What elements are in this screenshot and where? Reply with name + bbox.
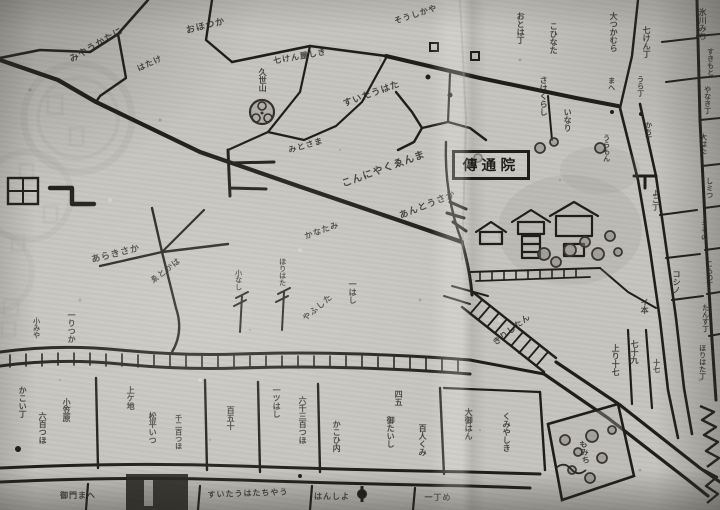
map-label: 一丁め: [425, 494, 452, 502]
map-label: くみやしき: [502, 412, 510, 452]
map-label: 百五十: [226, 406, 234, 430]
map-label: やなき丁: [703, 86, 710, 114]
map-label: ほりはた丁: [698, 345, 705, 380]
map-label: まへ: [607, 77, 614, 91]
dark-compound-block: [126, 474, 188, 510]
map-label: 上ケ地: [126, 386, 134, 410]
map-label: 御門まへ: [60, 492, 96, 500]
map-label: 七けん丁: [642, 26, 650, 58]
map-label: 大御はん: [464, 408, 472, 440]
map-label: 六百つほ: [38, 412, 46, 444]
upper-street: [386, 56, 618, 106]
temple-label-box: 傳通院: [452, 150, 530, 180]
map-label: 千二百つほ: [174, 415, 181, 450]
map-label: コシノ: [672, 270, 680, 294]
temple-crest-icon: [250, 100, 274, 124]
map-label: よこ丁: [651, 190, 658, 211]
map-label: 六千三百つほ: [298, 396, 306, 444]
map-label: すきもと: [706, 48, 713, 76]
zigzag-boundary: [700, 406, 719, 503]
map-label: おとは丁: [516, 12, 524, 44]
temple-label: 傳通院: [463, 155, 520, 175]
page-crease: [460, 0, 466, 260]
map-label: 大はた: [699, 134, 706, 155]
map-label: 久世山: [258, 68, 266, 92]
map-label: かこひ内: [332, 420, 340, 452]
gate-marker-icons: [430, 43, 479, 60]
map-label: いなり: [563, 108, 571, 132]
map-label: こもの丁: [705, 260, 712, 288]
map-label: かち丁: [644, 122, 651, 143]
map-label: 七十九: [630, 340, 638, 364]
map-label: 松平いつ: [148, 412, 156, 444]
map-label: はんしよ: [314, 493, 350, 501]
map-label: ほりはた: [278, 258, 285, 286]
map-label: 一りつか: [67, 311, 75, 343]
map-label: 御たいし: [386, 416, 394, 448]
map-label: うら丁: [636, 76, 643, 97]
map-label: 小なし: [234, 270, 241, 291]
map-label: 上り十七: [611, 344, 619, 376]
library-stamp-watermark: [0, 64, 132, 336]
map-label: 一ツはし: [272, 386, 280, 418]
map-label: しミつ: [705, 178, 712, 199]
map-label: こひなた: [549, 22, 557, 54]
map-label: 百人くみ: [418, 424, 426, 456]
map-label: たんす丁: [701, 304, 708, 332]
garden-plot: [548, 404, 634, 500]
map-label: うらもん: [602, 134, 609, 162]
map-label: イ本: [640, 298, 648, 314]
map-label: ミその: [700, 220, 707, 241]
map-label: 小笠原: [62, 398, 70, 422]
rice-field-icon: [8, 178, 38, 204]
map-label: 十七: [652, 359, 659, 373]
map-label: かこい丁: [18, 386, 26, 418]
map-label: 四五: [394, 390, 402, 406]
map-label: 大つかむら: [609, 12, 617, 52]
map-label: 一はし: [348, 280, 356, 304]
map-label: 氷川みち: [698, 8, 706, 40]
map-label: さはくらし: [539, 76, 547, 116]
map-canvas: 傳通院 みやうかたにおほつかはたけ七けん屋しき久世山そうしかやおとは丁こひなたす…: [0, 0, 720, 510]
map-label: 小みや: [32, 318, 39, 339]
